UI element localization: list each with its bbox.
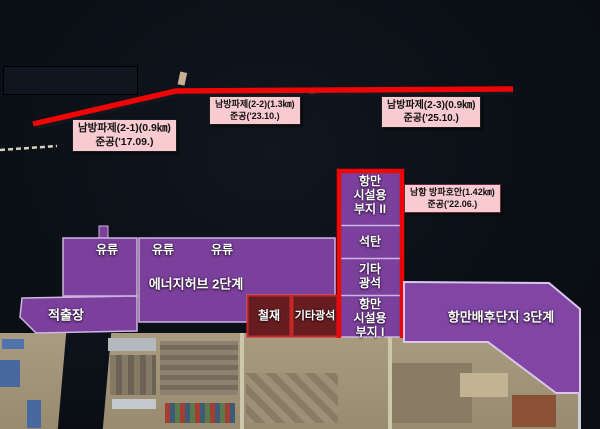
label-line: 부지 II [353,202,386,216]
label-line: 남방파제(2-3)(0.9㎞) [387,99,475,112]
blank-label-box [3,66,138,95]
label-line: 준공('22.06.) [410,199,495,211]
warehouse-block [108,338,156,351]
label-line: 항만 [353,174,386,188]
blue-roof-warehouse [2,339,24,349]
label-line: 기타 [359,262,381,276]
zone-label-oil-2: 유류 [152,241,174,258]
zone-label-hinterland-3: 항만배후단지 3단계 [448,307,555,326]
storage-yard [246,373,338,423]
label-line: 준공('25.10.) [387,112,475,125]
sea-strip [581,333,600,429]
rust-patch [512,395,556,427]
port-plan-map: 남방파제(2-1)(0.9㎞) 준공('17.09.) 남방파제(2-2)(1.… [0,0,600,429]
zone-label-steel: 철재 [258,307,280,324]
blue-roof-warehouse [27,400,41,428]
label-line: 시설용 [353,188,386,202]
zone-label-other-ore-small: 기타광석 [295,307,335,323]
warehouse-block [112,399,156,409]
container-yard [160,341,238,395]
label-line: 남방파제(2-2)(1.3㎞) [215,99,295,111]
zone-label-extraction-yard: 적출장 [48,305,84,324]
label-line: 시설용 [353,311,386,325]
zone-label-port-facility-1: 항만 시설용 부지 I [353,297,386,339]
zone-label-coal: 석탄 [359,233,381,250]
zone-label-port-facility-2: 항만 시설용 부지 II [353,174,386,216]
label-line: 부지 I [353,325,386,339]
water-channel [58,333,111,429]
container-strip [165,403,235,423]
zone-label-energy-hub: 에너지허브 2단계 [149,274,244,293]
label-breakwater-2-3: 남방파제(2-3)(0.9㎞) 준공('25.10.) [381,96,481,128]
label-line: 광석 [359,276,381,290]
zone-label-oil-1: 유류 [96,241,118,258]
zone-label-oil-3: 유류 [211,241,233,258]
road [240,333,244,429]
label-namhang-revetment: 남항 방파호안(1.42㎞) 준공('22.06.) [404,184,501,213]
container-yard [110,355,156,395]
label-line: 준공('17.09.) [78,136,171,150]
label-breakwater-2-2: 남방파제(2-2)(1.3㎞) 준공('23.10.) [209,96,301,125]
label-line: 남항 방파호안(1.42㎞) [410,187,495,199]
satellite-terrain [0,333,600,429]
label-line: 항만 [353,297,386,311]
pale-yard [460,373,508,397]
label-breakwater-2-1: 남방파제(2-1)(0.9㎞) 준공('17.09.) [72,119,177,152]
zone-label-other-ore: 기타 광석 [359,262,381,290]
label-line: 남방파제(2-1)(0.9㎞) [78,122,171,136]
label-line: 준공('23.10.) [215,111,295,123]
blue-roof-warehouse [0,360,20,387]
